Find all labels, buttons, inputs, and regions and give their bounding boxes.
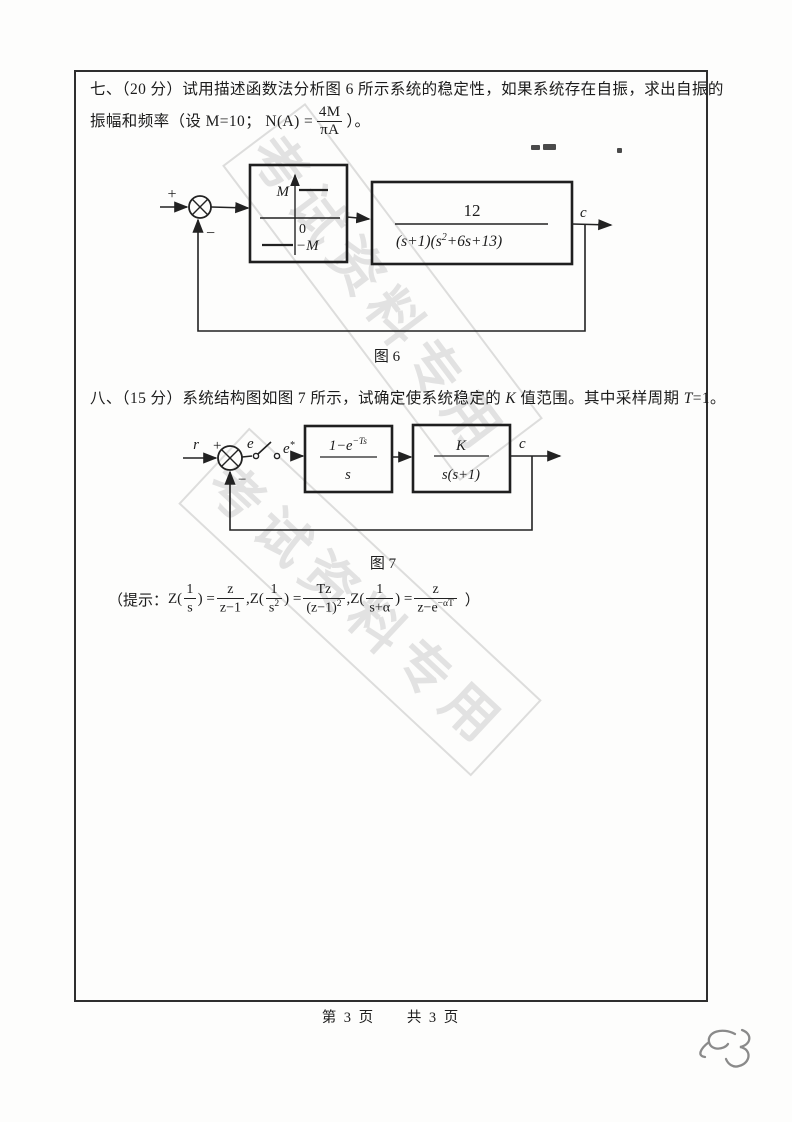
fig7-minus-sign: − — [238, 472, 246, 488]
question8-T: T — [684, 390, 693, 407]
hint-term2-arg: 1 s2 — [266, 582, 282, 617]
fraction-numerator: 4M — [319, 104, 341, 121]
footer-page-total: 共 3 页 — [407, 1010, 461, 1026]
hint-term1-post: ) = — [198, 591, 215, 608]
figure-6-diagram: + M 0 −M 12 (s+1)(s2+6s+13) c − 图 6 — [90, 145, 650, 380]
exam-page: { "page": { "footer_page": "第 3 页", "foo… — [0, 0, 792, 1122]
den-base: z−e — [417, 601, 437, 616]
hint-term3-post: ) = — [395, 591, 412, 608]
fig7-e-label: e — [247, 436, 254, 452]
fig6-relay-M-label: M — [276, 184, 291, 200]
fig7-sampler-switch — [258, 442, 271, 454]
frac-den: s2 — [266, 598, 282, 617]
question7-line2-text: 振幅和频率（设 M=10； N(A) = — [90, 111, 313, 133]
fig6-junction-to-relay — [211, 207, 248, 208]
question7-line2: 振幅和频率（设 M=10； N(A) = 4M πA ）。 — [90, 104, 370, 140]
hint-term3-pre: Z( — [350, 591, 364, 608]
den-base: (z−1) — [306, 601, 336, 616]
frac-num: Tz — [317, 582, 332, 598]
fig7-sampler-contact — [274, 453, 279, 458]
fig6-plus-sign: + — [167, 186, 176, 203]
frac-num: 1 — [270, 582, 277, 598]
fig7-zoh-num-sup: −Ts — [352, 437, 367, 447]
fig7-estar-sup: * — [290, 440, 295, 451]
fig6-plant-numerator: 12 — [464, 201, 481, 220]
fig6-feedback-path — [198, 220, 585, 331]
fig7-zoh-num-base: 1−e — [329, 438, 353, 454]
fig7-zoh-denominator: s — [345, 467, 351, 483]
frac-den: z−e−αT — [414, 598, 456, 617]
hint-term2-pre: Z( — [250, 591, 264, 608]
hint-term2-post: ) = — [284, 591, 301, 608]
fig6-den-pre: (s+1)(s — [396, 233, 442, 250]
hint-term3-arg: 1 s+α — [366, 582, 393, 617]
frac-den: (z−1)2 — [303, 598, 344, 617]
fig7-zoh-numerator: 1−e−Ts — [329, 437, 367, 454]
frac-den: s — [184, 598, 195, 617]
question8-text-c: =1。 — [693, 390, 726, 407]
fraction-denominator: πA — [317, 121, 342, 139]
fig7-caption: 图 7 — [370, 555, 397, 572]
question7-line1: 七、（20 分）试用描述函数法分析图 6 所示系统的稳定性，如果系统存在自振，求… — [90, 79, 724, 101]
footer-page-number: 第 3 页 — [322, 1010, 376, 1026]
fig7-output-label: c — [519, 436, 526, 452]
describing-function-fraction: 4M πA — [317, 104, 342, 140]
page-footer: 第 3 页 共 3 页 — [74, 1006, 708, 1027]
fig6-relay-zero-label: 0 — [299, 222, 306, 237]
handwritten-mark — [690, 1018, 780, 1088]
question7-line2-close: ）。 — [346, 111, 370, 133]
fig7-sampler-contact — [253, 453, 258, 458]
den-base: z−1 — [220, 601, 241, 616]
hint-term3-result: z z−e−αT — [414, 582, 456, 617]
question8-hint: （提示： Z( 1 s ) = z z−1 , Z( 1 s2 ) = Tz (… — [108, 582, 480, 617]
hint-term1-pre: Z( — [168, 591, 182, 608]
fig7-plant-denominator: s(s+1) — [442, 467, 480, 483]
den-sup: 2 — [274, 599, 279, 609]
frac-den: s+α — [366, 598, 393, 617]
question8-line1: 八、（15 分）系统结构图如图 7 所示，试确定使系统稳定的 K 值范围。其中采… — [90, 388, 726, 410]
hint-term1-result: z z−1 — [217, 582, 244, 617]
fig7-estar-label: e* — [283, 440, 295, 457]
fig7-junction-to-sampler — [242, 456, 252, 457]
question8-text-a: 八、（15 分）系统结构图如图 7 所示，试确定使系统稳定的 — [90, 390, 505, 407]
frac-num: z — [432, 582, 438, 598]
fig6-caption: 图 6 — [374, 348, 401, 365]
frac-num: 1 — [186, 582, 193, 598]
fig6-output-arrow — [572, 224, 611, 225]
figure-7-diagram: r + e e* 1−e−Ts s K s(s+1) c − 图 7 — [150, 420, 580, 580]
fig7-plant-numerator: K — [455, 438, 467, 454]
fig6-den-post: +6s+13) — [447, 233, 502, 250]
fig6-relay-to-plant — [347, 217, 369, 219]
question8-K: K — [505, 390, 516, 407]
den-base: s+α — [369, 601, 390, 616]
den-base: s — [187, 601, 192, 616]
fig7-r-label: r — [193, 437, 199, 453]
den-sup: −αT — [438, 599, 454, 609]
fig6-plant-block — [372, 182, 572, 264]
hint-term1-arg: 1 s — [184, 582, 195, 617]
fig6-output-label: c — [580, 205, 587, 221]
frac-den: z−1 — [217, 598, 244, 617]
den-sup: 2 — [337, 599, 342, 609]
hint-open: （提示： — [108, 589, 168, 610]
frac-num: z — [227, 582, 233, 598]
fig6-plant-denominator: (s+1)(s2+6s+13) — [396, 232, 502, 250]
frac-num: 1 — [376, 582, 383, 598]
hint-close: ） — [465, 589, 480, 610]
hint-term2-result: Tz (z−1)2 — [303, 582, 344, 617]
fig6-minus-sign: − — [206, 225, 215, 242]
question8-text-b: 值范围。其中采样周期 — [516, 390, 684, 407]
fig6-relay-negM-label: −M — [296, 238, 320, 254]
